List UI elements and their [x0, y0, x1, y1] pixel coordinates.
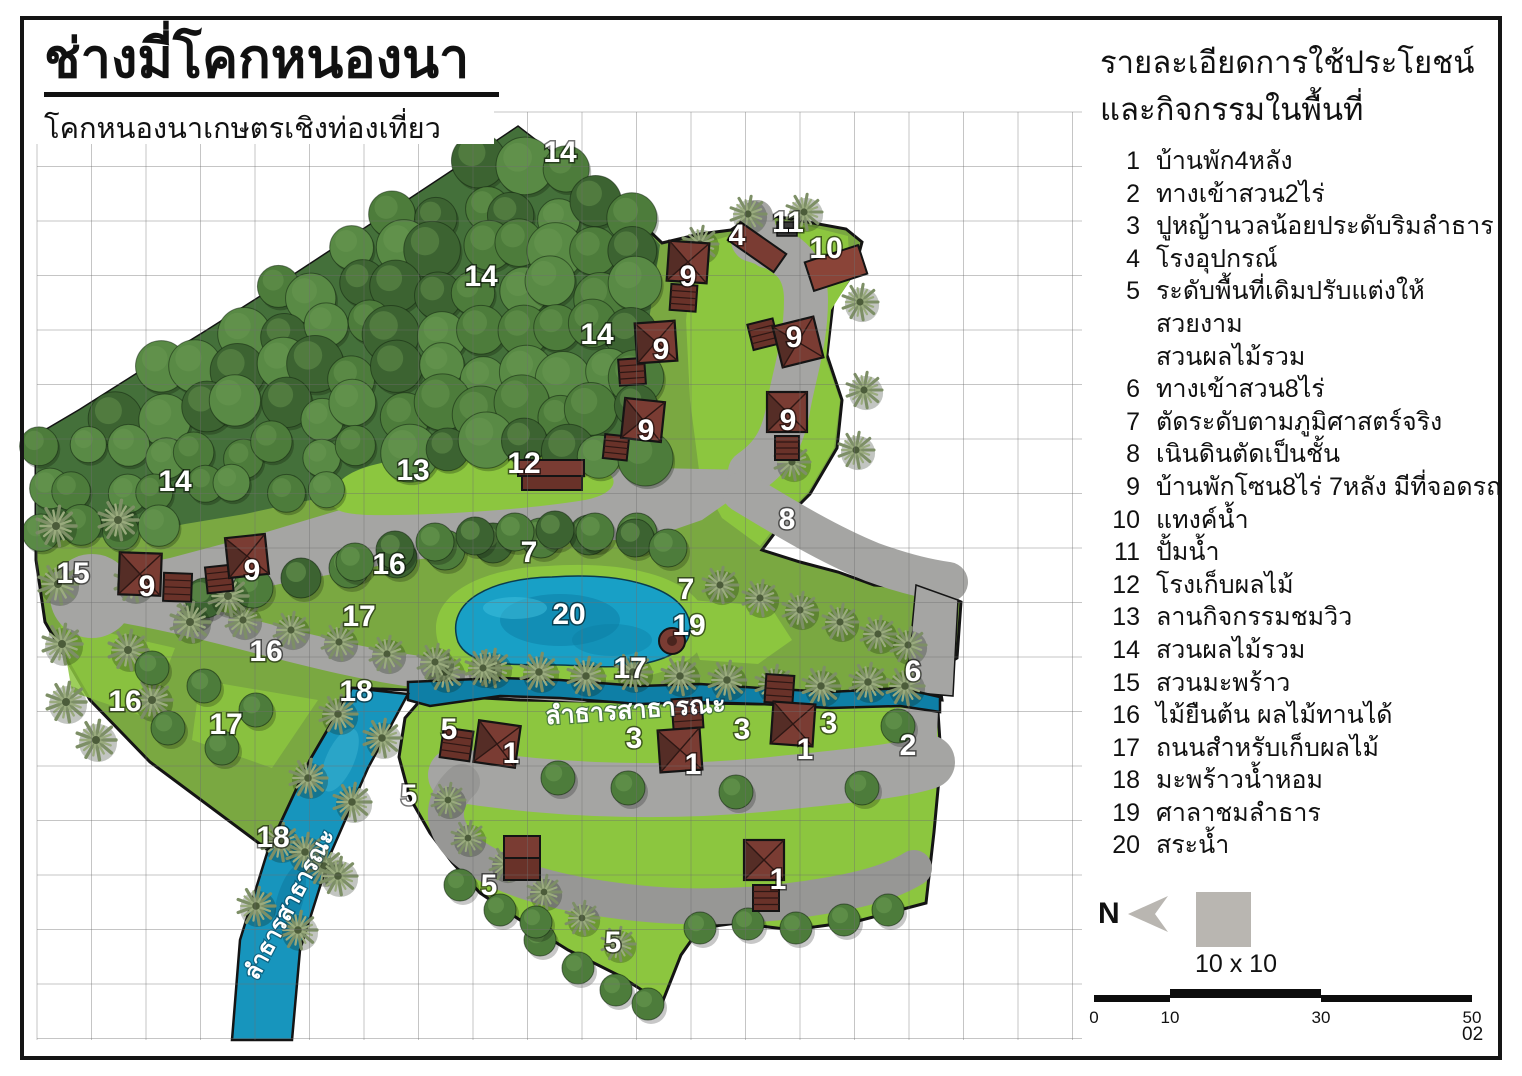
- legend-item-text: ปั้มน้ำ: [1156, 536, 1219, 569]
- legend-item-text: ระดับพื้นที่เดิมปรับแต่งให้สวยงาม: [1156, 275, 1508, 340]
- scale-tick-label: 30: [1312, 1008, 1331, 1028]
- legend-item-number: 3: [1100, 210, 1140, 243]
- legend-item: 19ศาลาชมลำธาร: [1100, 797, 1508, 830]
- legend-item-number: 2: [1100, 178, 1140, 211]
- legend-item-text: บ้านพักโซน8ไร่ 7หลัง มีที่จอดรถ: [1156, 471, 1501, 504]
- legend-item: 10แทงค์น้ำ: [1100, 504, 1508, 537]
- scale-segment: [1170, 989, 1321, 998]
- legend-item-number: 12: [1100, 569, 1140, 602]
- legend-item: 5ระดับพื้นที่เดิมปรับแต่งให้สวยงาม: [1100, 275, 1508, 340]
- legend-heading-line1: รายละเอียดการใช้ประโยชน์: [1100, 40, 1508, 87]
- legend-list: 1บ้านพัก4หลัง2ทางเข้าสวน2ไร่3ปูหญ้านวลน้…: [1100, 145, 1508, 862]
- legend-item: 11ปั้มน้ำ: [1100, 536, 1508, 569]
- legend-item-text: ตัดระดับตามภูมิศาสตร์จริง: [1156, 406, 1442, 439]
- legend-item-text: ทางเข้าสวน2ไร่: [1156, 178, 1325, 211]
- legend-item-text: ปูหญ้านวลน้อยประดับริมลำธาร: [1156, 210, 1494, 243]
- legend-item-text: แทงค์น้ำ: [1156, 504, 1249, 537]
- title-block: ช่างมี่โคกหนองนา โคกหนองนาเกษตรเชิงท่องเ…: [44, 28, 514, 151]
- scale-segment: [1094, 995, 1170, 1002]
- title-underline: [44, 92, 499, 97]
- legend-item-number: 10: [1100, 504, 1140, 537]
- legend-item: 4โรงอุปกรณ์: [1100, 243, 1508, 276]
- scale-bar: 0103050: [1094, 986, 1474, 1020]
- legend-item: 16ไม้ยืนต้น ผลไม้ทานได้: [1100, 699, 1508, 732]
- legend-item-number: 18: [1100, 764, 1140, 797]
- legend-item-text: บ้านพัก4หลัง: [1156, 145, 1293, 178]
- legend-item-number: 7: [1100, 406, 1140, 439]
- legend-item: 2ทางเข้าสวน2ไร่: [1100, 178, 1508, 211]
- legend-item-text: สวนมะพร้าว: [1156, 667, 1290, 700]
- legend-item: 14สวนผลไม้รวม: [1100, 634, 1508, 667]
- legend-item: 9บ้านพักโซน8ไร่ 7หลัง มีที่จอดรถ: [1100, 471, 1508, 504]
- legend-item: 13ลานกิจกรรมชมวิว: [1100, 601, 1508, 634]
- legend-item: 8เนินดินตัดเป็นชั้น: [1100, 438, 1508, 471]
- legend-item-number: 15: [1100, 667, 1140, 700]
- legend-item-text: มะพร้าวน้ำหอม: [1156, 764, 1323, 797]
- legend-item-number: 5: [1100, 275, 1140, 340]
- grid-cell-swatch: [1196, 892, 1251, 947]
- legend-item-number: 19: [1100, 797, 1140, 830]
- legend-heading: รายละเอียดการใช้ประโยชน์ และกิจกรรมในพื้…: [1100, 40, 1508, 133]
- legend-item-text: โรงเก็บผลไม้: [1156, 569, 1294, 602]
- legend-panel: รายละเอียดการใช้ประโยชน์ และกิจกรรมในพื้…: [1100, 40, 1508, 862]
- legend-item: 20สระน้ำ: [1100, 829, 1508, 862]
- site-plan-page: 1414141441110999999912138151616161717171…: [0, 0, 1522, 1076]
- legend-item-number: 4: [1100, 243, 1140, 276]
- legend-item-number: 20: [1100, 829, 1140, 862]
- legend-item: 3ปูหญ้านวลน้อยประดับริมลำธาร: [1100, 210, 1508, 243]
- legend-item-number: 13: [1100, 601, 1140, 634]
- legend-item: 12โรงเก็บผลไม้: [1100, 569, 1508, 602]
- scale-tick-label: 10: [1161, 1008, 1180, 1028]
- north-arrow: N: [1098, 894, 1172, 934]
- page-title: ช่างมี่โคกหนองนา: [44, 28, 514, 90]
- legend-item: 15สวนมะพร้าว: [1100, 667, 1508, 700]
- legend-item-text: ศาลาชมลำธาร: [1156, 797, 1321, 830]
- legend-item-number: 17: [1100, 732, 1140, 765]
- legend-item-text: ไม้ยืนต้น ผลไม้ทานได้: [1156, 699, 1393, 732]
- legend-item-number: 8: [1100, 438, 1140, 471]
- north-label: N: [1098, 897, 1120, 931]
- legend-item-text: เนินดินตัดเป็นชั้น: [1156, 438, 1340, 471]
- scale-segment: [1321, 995, 1472, 1002]
- legend-item-number: 1: [1100, 145, 1140, 178]
- legend-item-text-line2: สวนผลไม้รวม: [1156, 341, 1508, 374]
- scale-tick-label: 0: [1089, 1008, 1098, 1028]
- legend-heading-line2: และกิจกรรมในพื้นที่: [1100, 87, 1508, 134]
- legend-item-number: 6: [1100, 373, 1140, 406]
- grid-cell-label: 10 x 10: [1176, 950, 1296, 979]
- legend-item-number: 16: [1100, 699, 1140, 732]
- legend-item: 17ถนนสำหรับเก็บผลไม้: [1100, 732, 1508, 765]
- legend-item-text: โรงอุปกรณ์: [1156, 243, 1278, 276]
- legend-item-text: สวนผลไม้รวม: [1156, 634, 1305, 667]
- north-arrow-icon: [1124, 894, 1172, 934]
- legend-item-text: ทางเข้าสวน8ไร่: [1156, 373, 1325, 406]
- legend-item: 7ตัดระดับตามภูมิศาสตร์จริง: [1100, 406, 1508, 439]
- legend-item-number: 9: [1100, 471, 1140, 504]
- legend-item: 18มะพร้าวน้ำหอม: [1100, 764, 1508, 797]
- legend-item-text: ถนนสำหรับเก็บผลไม้: [1156, 732, 1379, 765]
- legend-item-text: ลานกิจกรรมชมวิว: [1156, 601, 1352, 634]
- legend-item: 6ทางเข้าสวน8ไร่: [1100, 373, 1508, 406]
- legend-item-text: สระน้ำ: [1156, 829, 1229, 862]
- legend-item-number: 11: [1100, 536, 1140, 569]
- legend-item: 1บ้านพัก4หลัง: [1100, 145, 1508, 178]
- page-subtitle: โคกหนองนาเกษตรเชิงท่องเที่ยว: [44, 105, 514, 151]
- legend-item-number: 14: [1100, 634, 1140, 667]
- page-number: 02: [1462, 1024, 1483, 1046]
